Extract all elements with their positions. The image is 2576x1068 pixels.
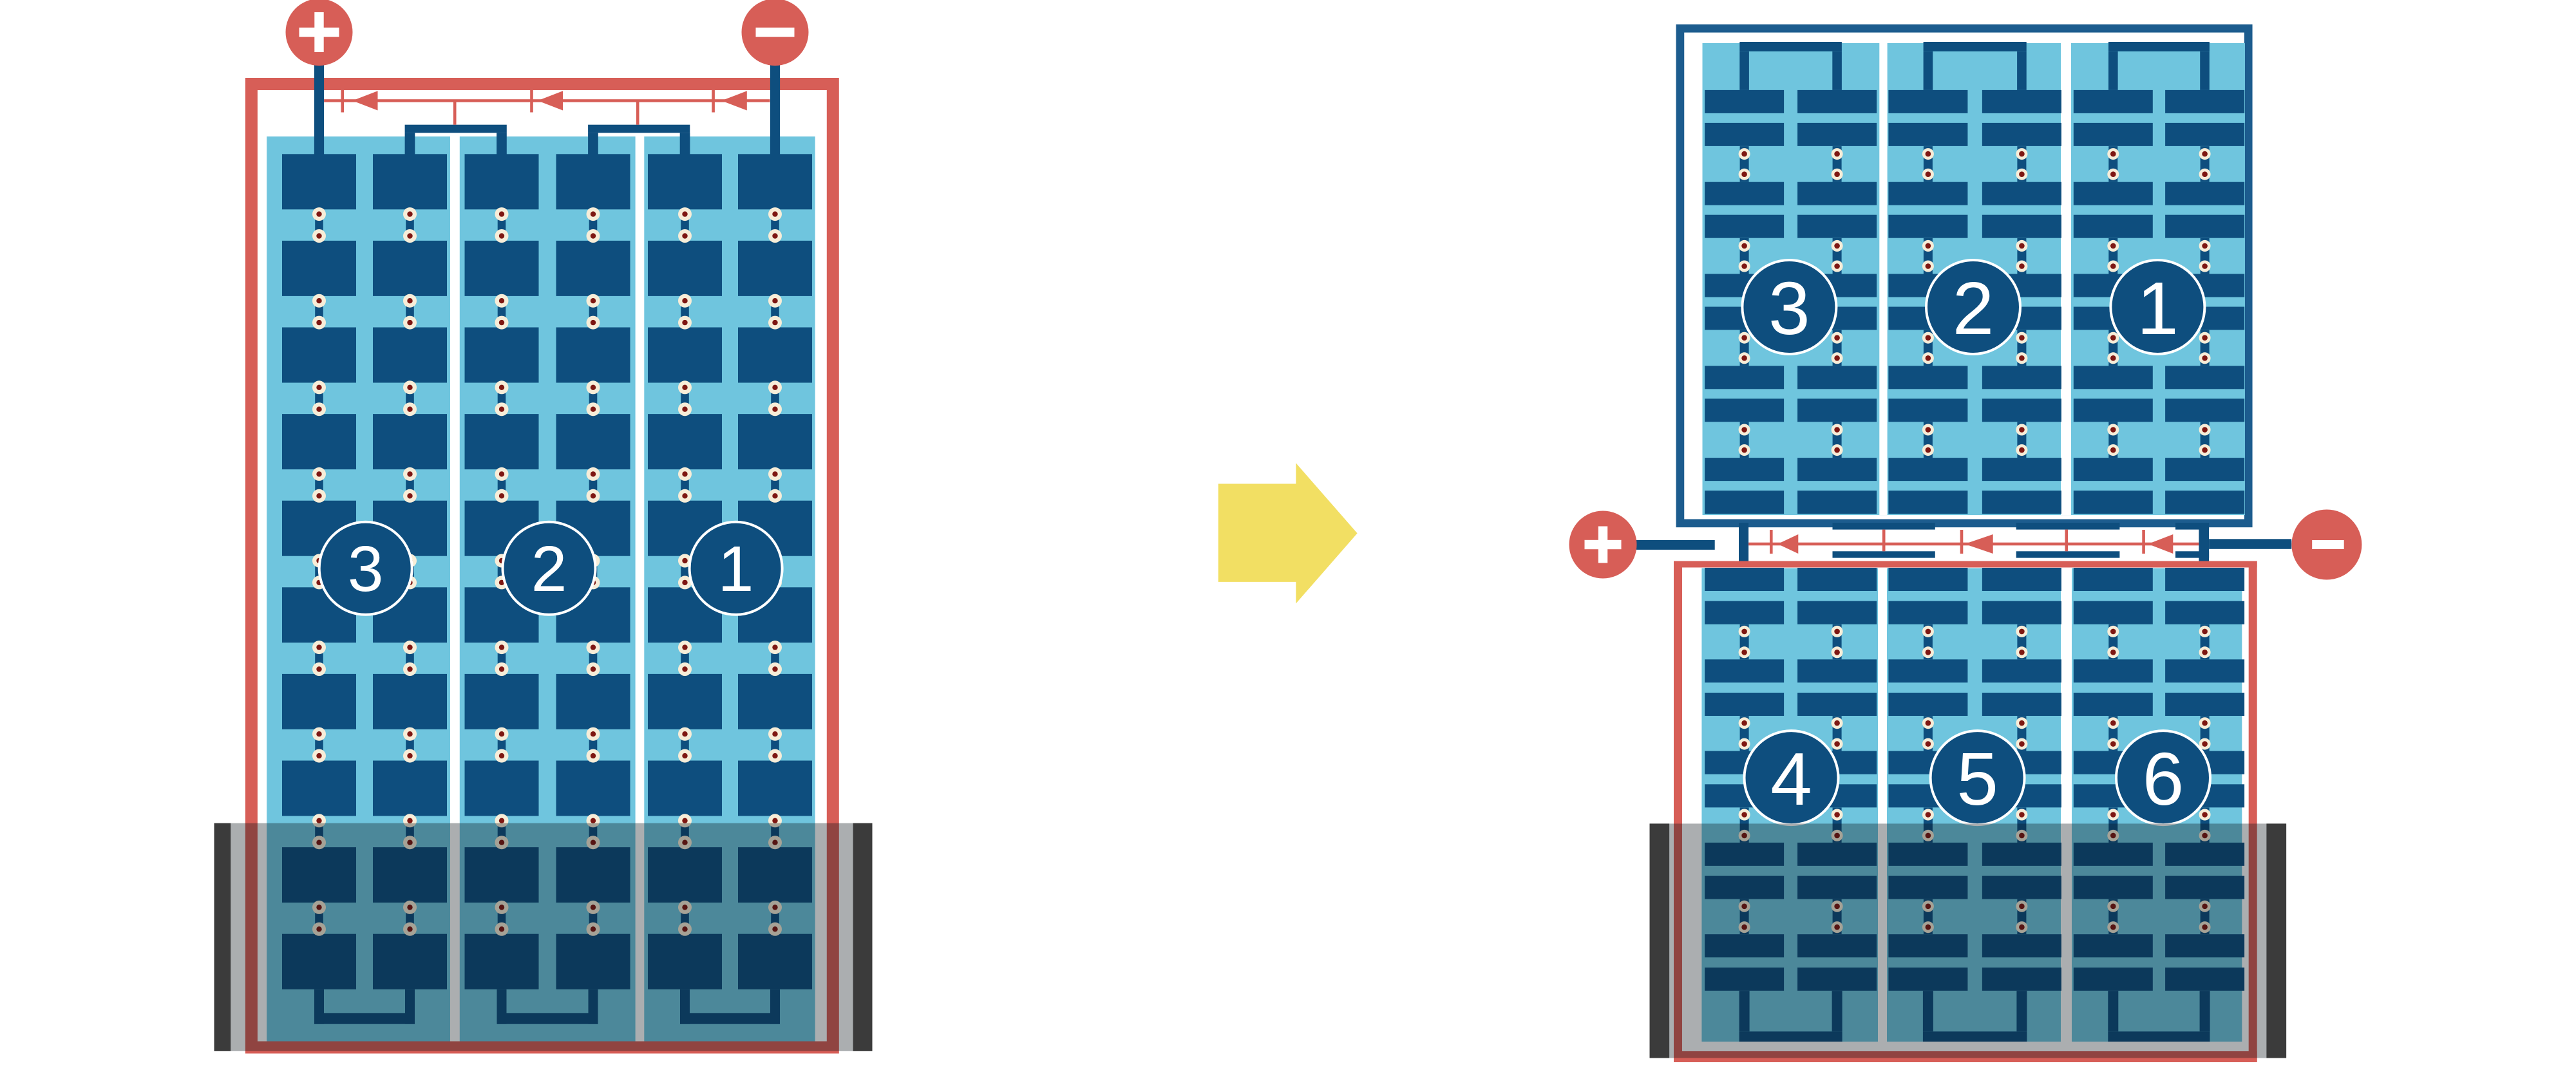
svg-text:5: 5: [1956, 737, 1998, 821]
svg-text:3: 3: [1768, 267, 1810, 350]
svg-text:1: 1: [2137, 267, 2179, 350]
svg-text:3: 3: [348, 533, 384, 605]
svg-text:2: 2: [531, 533, 567, 605]
svg-text:2: 2: [1953, 267, 1994, 350]
svg-text:4: 4: [1770, 737, 1812, 821]
svg-text:6: 6: [2143, 737, 2184, 821]
svg-text:1: 1: [718, 533, 754, 605]
